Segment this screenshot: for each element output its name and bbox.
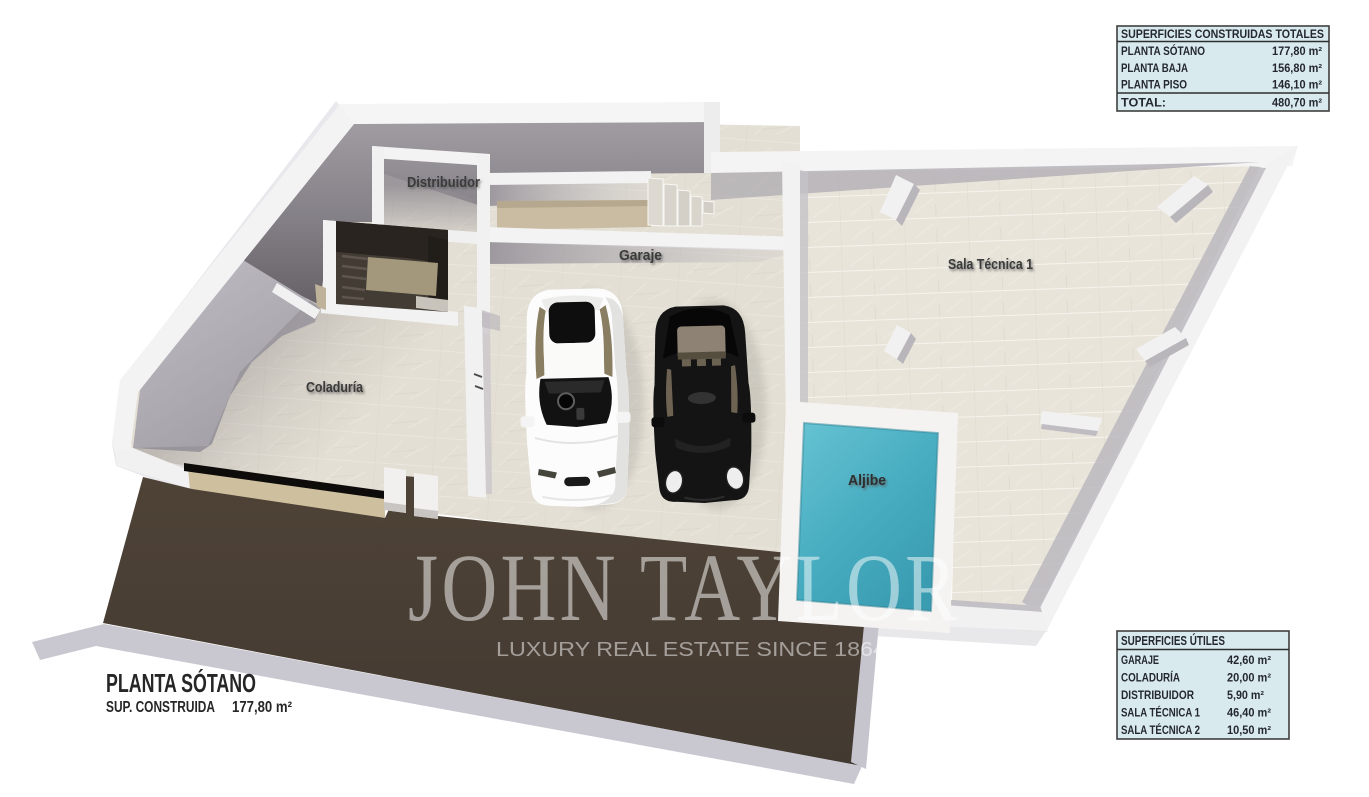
svg-text:PLANTA BAJA: PLANTA BAJA <box>1121 63 1188 75</box>
svg-text:COLADURÍA: COLADURÍA <box>1121 672 1180 685</box>
svg-text:20,00 m²: 20,00 m² <box>1227 673 1271 685</box>
svg-text:PLANTA SÓTANO: PLANTA SÓTANO <box>1121 45 1205 58</box>
svg-text:42,60 m²: 42,60 m² <box>1227 655 1271 667</box>
svg-text:177,80 m²: 177,80 m² <box>232 699 292 716</box>
svg-text:Garaje: Garaje <box>619 248 662 264</box>
svg-text:TOTAL:: TOTAL: <box>1121 98 1166 110</box>
svg-text:5,90 m²: 5,90 m² <box>1227 690 1264 702</box>
svg-text:46,40 m²: 46,40 m² <box>1227 708 1271 720</box>
svg-text:Sala Técnica 1: Sala Técnica 1 <box>948 257 1033 273</box>
svg-text:SUP. CONSTRUIDA: SUP. CONSTRUIDA <box>106 699 215 716</box>
svg-text:177,80 m²: 177,80 m² <box>1272 46 1322 58</box>
svg-text:DISTRIBUIDOR: DISTRIBUIDOR <box>1121 690 1195 702</box>
svg-text:PLANTA PISO: PLANTA PISO <box>1121 80 1187 92</box>
svg-text:156,80 m²: 156,80 m² <box>1272 63 1322 75</box>
svg-text:480,70 m²: 480,70 m² <box>1272 98 1322 110</box>
svg-text:Aljibe: Aljibe <box>848 473 886 489</box>
svg-text:SALA TÉCNICA 1: SALA TÉCNICA 1 <box>1121 707 1200 720</box>
svg-text:SUPERFICIES CONSTRUIDAS TOTALE: SUPERFICIES CONSTRUIDAS TOTALES <box>1121 27 1324 41</box>
svg-text:10,50 m²: 10,50 m² <box>1227 725 1271 737</box>
svg-text:GARAJE: GARAJE <box>1121 655 1159 667</box>
svg-text:Distribuidor: Distribuidor <box>407 175 480 191</box>
svg-text:JOHN TAYLOR: JOHN TAYLOR <box>408 534 960 641</box>
svg-text:PLANTA SÓTANO: PLANTA SÓTANO <box>106 668 256 698</box>
svg-text:Coladuría: Coladuría <box>306 380 364 396</box>
svg-text:SALA TÉCNICA 2: SALA TÉCNICA 2 <box>1121 724 1200 737</box>
svg-text:LUXURY REAL ESTATE SINCE 1864: LUXURY REAL ESTATE SINCE 1864 <box>496 639 886 661</box>
svg-text:SUPERFICIES ÚTILES: SUPERFICIES ÚTILES <box>1121 633 1225 648</box>
svg-text:146,10 m²: 146,10 m² <box>1272 80 1322 92</box>
